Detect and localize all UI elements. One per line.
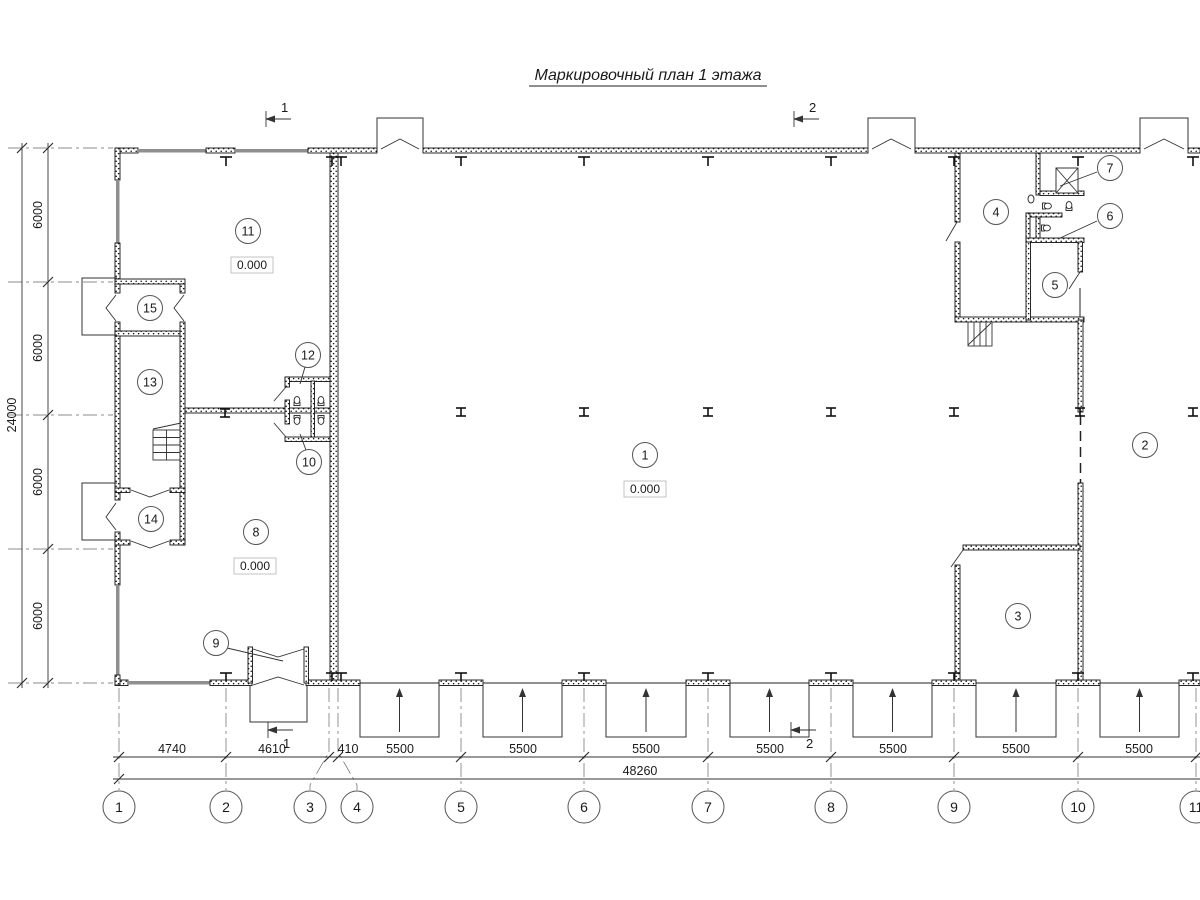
loading-docks bbox=[360, 686, 1179, 737]
svg-text:12: 12 bbox=[301, 349, 315, 363]
svg-text:13: 13 bbox=[143, 376, 157, 390]
drawing-title-text: Маркировочный план 1 этажа bbox=[534, 67, 761, 84]
svg-text:9: 9 bbox=[950, 799, 958, 815]
svg-text:3: 3 bbox=[1015, 610, 1022, 624]
svg-text:15: 15 bbox=[143, 302, 157, 316]
grid-bubble-7: 7 bbox=[692, 791, 724, 823]
svg-text:2: 2 bbox=[1142, 439, 1149, 453]
svg-text:6: 6 bbox=[580, 799, 588, 815]
grid-bubble-2: 2 bbox=[210, 791, 242, 823]
drawing-sheet: Маркировочный план 1 этажа bbox=[0, 0, 1200, 900]
floor-plan-drawing: Маркировочный план 1 этажа bbox=[0, 0, 1200, 900]
svg-text:3: 3 bbox=[306, 799, 314, 815]
room-label-2: 2 bbox=[1133, 433, 1158, 458]
svg-text:6000: 6000 bbox=[31, 201, 45, 229]
wall-mid-left-block bbox=[185, 408, 330, 413]
elevation-mark: 0.000 bbox=[630, 482, 660, 496]
svg-text:5: 5 bbox=[457, 799, 465, 815]
section-markers: 1 2 1 2 bbox=[265, 100, 819, 751]
svg-text:10: 10 bbox=[302, 456, 316, 470]
svg-text:11: 11 bbox=[242, 225, 255, 239]
svg-text:6000: 6000 bbox=[31, 468, 45, 496]
svg-text:6: 6 bbox=[1107, 210, 1114, 224]
svg-text:5500: 5500 bbox=[756, 742, 784, 756]
room-label-11: 11 0.000 bbox=[231, 219, 273, 274]
window-band bbox=[128, 681, 210, 685]
room-label-4: 4 bbox=[984, 200, 1009, 225]
room-label-3: 3 bbox=[1006, 604, 1031, 629]
elevation-mark: 0.000 bbox=[237, 258, 267, 272]
svg-text:6000: 6000 bbox=[31, 602, 45, 630]
svg-text:410: 410 bbox=[338, 742, 359, 756]
svg-text:1: 1 bbox=[281, 100, 288, 115]
wall-grid-3-4 bbox=[330, 153, 338, 680]
dimensions-bottom: 4740 4610 410 5500 5500 5500 5500 5500 5… bbox=[103, 688, 1200, 823]
dim-total-left: 24000 bbox=[5, 398, 19, 433]
svg-text:7: 7 bbox=[704, 799, 712, 815]
window-band bbox=[116, 180, 120, 243]
svg-text:14: 14 bbox=[144, 513, 158, 527]
room-label-5: 5 bbox=[1043, 273, 1068, 298]
room-label-8: 8 0.000 bbox=[234, 520, 276, 575]
svg-text:5500: 5500 bbox=[386, 742, 414, 756]
grid-bubble-11: 11 bbox=[1180, 791, 1200, 823]
grid-bubble-8: 8 bbox=[815, 791, 847, 823]
columns-top-wall bbox=[220, 157, 1199, 166]
dim-texts-left: 6000 6000 6000 6000 24000 bbox=[5, 201, 45, 630]
svg-text:5500: 5500 bbox=[509, 742, 537, 756]
svg-text:1: 1 bbox=[115, 799, 123, 815]
svg-text:8: 8 bbox=[253, 526, 260, 540]
svg-text:5500: 5500 bbox=[879, 742, 907, 756]
grid-centerlines bbox=[119, 688, 1196, 790]
svg-text:7: 7 bbox=[1107, 162, 1114, 176]
svg-text:8: 8 bbox=[827, 799, 835, 815]
grid-bubble-1: 1 bbox=[103, 791, 135, 823]
svg-text:10: 10 bbox=[1070, 799, 1086, 815]
svg-text:6000: 6000 bbox=[31, 334, 45, 362]
dock-arrows bbox=[396, 688, 1143, 732]
elevation-mark: 0.000 bbox=[240, 559, 270, 573]
svg-text:2: 2 bbox=[806, 736, 813, 751]
dim-total: 48260 bbox=[623, 764, 658, 778]
drawing-title: Маркировочный план 1 этажа bbox=[529, 67, 767, 86]
grid-bubble-4: 4 bbox=[341, 791, 373, 823]
section-marker-1-top: 1 bbox=[265, 100, 291, 127]
svg-text:4: 4 bbox=[993, 206, 1000, 220]
svg-text:11: 11 bbox=[1189, 799, 1200, 815]
svg-text:4: 4 bbox=[353, 799, 361, 815]
room-label-1: 1 0.000 bbox=[624, 443, 666, 498]
svg-text:4610: 4610 bbox=[258, 742, 286, 756]
svg-text:5500: 5500 bbox=[632, 742, 660, 756]
dimensions-left: 6000 6000 6000 6000 24000 bbox=[5, 143, 113, 688]
svg-text:2: 2 bbox=[809, 100, 816, 115]
room-label-14: 14 bbox=[139, 507, 164, 532]
svg-text:5500: 5500 bbox=[1002, 742, 1030, 756]
grid-bubbles: 1 2 3 4 5 6 7 8 9 10 11 bbox=[103, 791, 1200, 823]
svg-text:5: 5 bbox=[1052, 279, 1059, 293]
grid-bubble-6: 6 bbox=[568, 791, 600, 823]
stairs-right bbox=[968, 322, 992, 346]
sink bbox=[1028, 195, 1034, 203]
svg-text:5500: 5500 bbox=[1125, 742, 1153, 756]
room-label-13: 13 bbox=[138, 370, 163, 395]
svg-text:1: 1 bbox=[642, 449, 649, 463]
grid-bubble-9: 9 bbox=[938, 791, 970, 823]
grid-bubble-3: 3 bbox=[294, 791, 326, 823]
room-label-9: 9 bbox=[204, 631, 284, 662]
window-band bbox=[138, 149, 206, 153]
columns-mid-row bbox=[220, 408, 1198, 417]
svg-text:9: 9 bbox=[213, 637, 220, 651]
vestibule-room9 bbox=[248, 647, 309, 722]
window-band bbox=[235, 149, 308, 153]
grid-bubble-10: 10 bbox=[1062, 791, 1094, 823]
svg-text:2: 2 bbox=[222, 799, 230, 815]
section-marker-2-top: 2 bbox=[793, 100, 819, 127]
stairs-left bbox=[153, 423, 181, 460]
window-band bbox=[116, 585, 120, 675]
dim-texts: 4740 4610 410 5500 5500 5500 5500 5500 5… bbox=[158, 742, 1153, 778]
svg-text:4740: 4740 bbox=[158, 742, 186, 756]
row-centerlines bbox=[8, 148, 113, 683]
grid-bubble-5: 5 bbox=[445, 791, 477, 823]
room-label-15: 15 bbox=[138, 296, 163, 321]
